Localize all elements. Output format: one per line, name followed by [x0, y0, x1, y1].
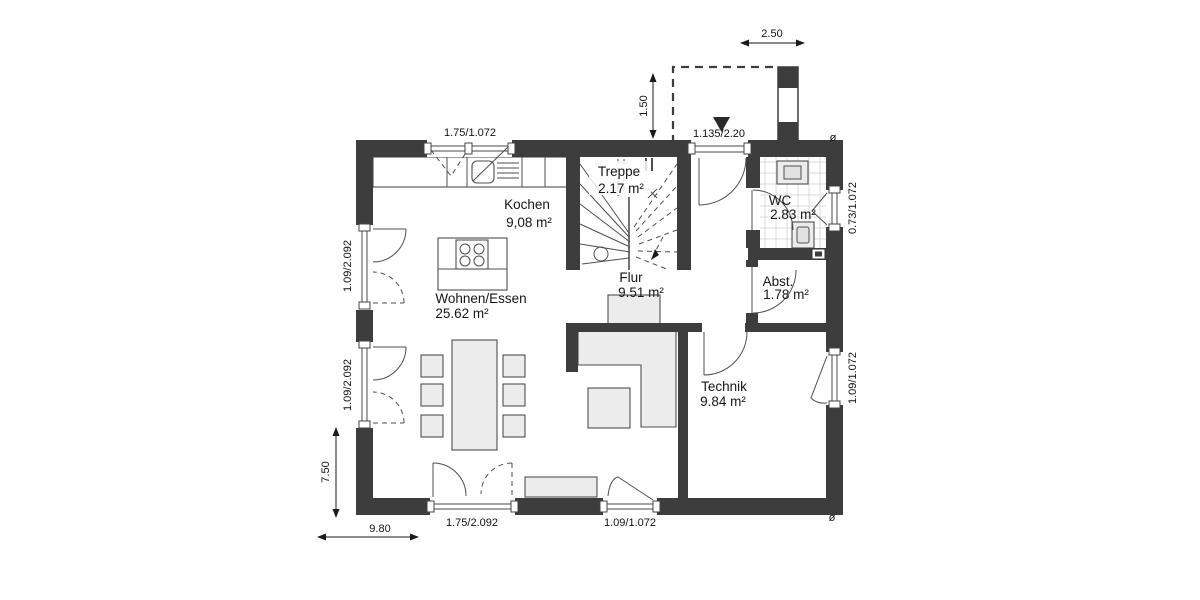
- window-technik: [826, 348, 843, 408]
- technik-door-swing: [704, 332, 747, 375]
- dimension-plan-depth: 7.50: [320, 427, 340, 518]
- dim-left-window-upper: 1.09/2.092: [342, 240, 354, 292]
- entrance-opening: [688, 140, 751, 157]
- window-kitchen: [424, 140, 515, 157]
- svg-text:Flur: Flur: [619, 270, 643, 285]
- room-label-flur: Flur 9.51 m²: [618, 270, 664, 300]
- left-lower-window-swing: [373, 347, 406, 423]
- dim-left-window-lower: 1.09/2.092: [342, 359, 354, 411]
- chair: [503, 415, 525, 437]
- floor-plan-canvas: ø ø 2.50 1.50 7.50 9.80 1.75/1.072 1.135…: [0, 0, 1200, 600]
- dim-entrance-door: 1.135/2.20: [693, 128, 745, 140]
- svg-text:WC: WC: [769, 193, 792, 208]
- dim-south-window: 1.09/1.072: [604, 517, 656, 529]
- svg-text:1.50: 1.50: [638, 95, 650, 116]
- dining-set: [421, 340, 525, 450]
- south-window-swing: [608, 477, 653, 500]
- chair: [421, 415, 443, 437]
- window-wc: [826, 186, 843, 231]
- room-label-kochen: Kochen 9,08 m²: [504, 197, 552, 230]
- room-label-wohnen-essen: Wohnen/Essen 25.62 m²: [435, 291, 526, 321]
- entrance-door-swing: [699, 158, 746, 205]
- kitchen-island: [438, 238, 507, 290]
- svg-text:25.62 m²: 25.62 m²: [435, 306, 489, 321]
- svg-text:2.50: 2.50: [761, 28, 782, 40]
- terrace-door-swing: [433, 463, 512, 497]
- dim-technik-window: 1.09/1.072: [847, 352, 859, 404]
- svg-text:9,08 m²: 9,08 m²: [506, 215, 552, 230]
- chair: [421, 355, 443, 377]
- stair-direction-arrow: [651, 249, 659, 260]
- kitchen-counter: [373, 157, 567, 187]
- dim-terrace-door: 1.75/2.092: [446, 517, 498, 529]
- svg-text:Treppe: Treppe: [598, 164, 640, 179]
- svg-text:Wohnen/Essen: Wohnen/Essen: [435, 291, 526, 306]
- chimney: [778, 67, 798, 143]
- dimension-canopy-depth: 1.50: [638, 73, 657, 139]
- window-left-lower: [356, 341, 373, 428]
- dimension-plan-width: 9.80: [317, 523, 419, 541]
- dimension-canopy-width: 2.50: [740, 28, 805, 47]
- shaft-symbol: [812, 249, 825, 259]
- dim-kitchen-window: 1.75/1.072: [444, 127, 496, 139]
- downpipe-icon: ø: [830, 132, 837, 144]
- sideboard: [525, 477, 597, 497]
- svg-text:9.51 m²: 9.51 m²: [618, 285, 664, 300]
- svg-text:9.84 m²: 9.84 m²: [700, 394, 746, 409]
- window-south: [600, 498, 660, 515]
- left-upper-window-swing: [373, 229, 406, 303]
- room-label-technik: Technik 9.84 m²: [700, 379, 747, 409]
- washbasin: [777, 161, 808, 184]
- svg-text:9.80: 9.80: [369, 523, 390, 535]
- stove: [456, 240, 488, 269]
- downpipe-icon: ø: [829, 512, 836, 524]
- svg-text:Technik: Technik: [701, 379, 747, 394]
- floor-plan-drawing: ø ø 2.50 1.50 7.50 9.80 1.75/1.072 1.135…: [0, 0, 1200, 600]
- svg-text:Kochen: Kochen: [504, 197, 550, 212]
- chair: [503, 384, 525, 406]
- dining-table: [452, 340, 497, 450]
- dim-wc-window: 0.73/1.072: [847, 182, 859, 234]
- window-left-upper: [356, 224, 373, 309]
- terrace-door-opening: [427, 498, 518, 515]
- chair: [421, 384, 443, 406]
- toilet: [792, 222, 814, 248]
- technik-window-swing: [811, 356, 827, 403]
- coffee-table: [588, 388, 630, 428]
- room-label-abst: Abst. 1.78 m²: [763, 274, 810, 302]
- svg-text:2.17 m²: 2.17 m²: [598, 181, 644, 196]
- svg-text:1.78 m²: 1.78 m²: [763, 287, 809, 302]
- chair: [503, 355, 525, 377]
- stair-newel: [594, 247, 608, 261]
- svg-text:2.83 m²: 2.83 m²: [770, 207, 816, 222]
- svg-text:7.50: 7.50: [320, 461, 332, 482]
